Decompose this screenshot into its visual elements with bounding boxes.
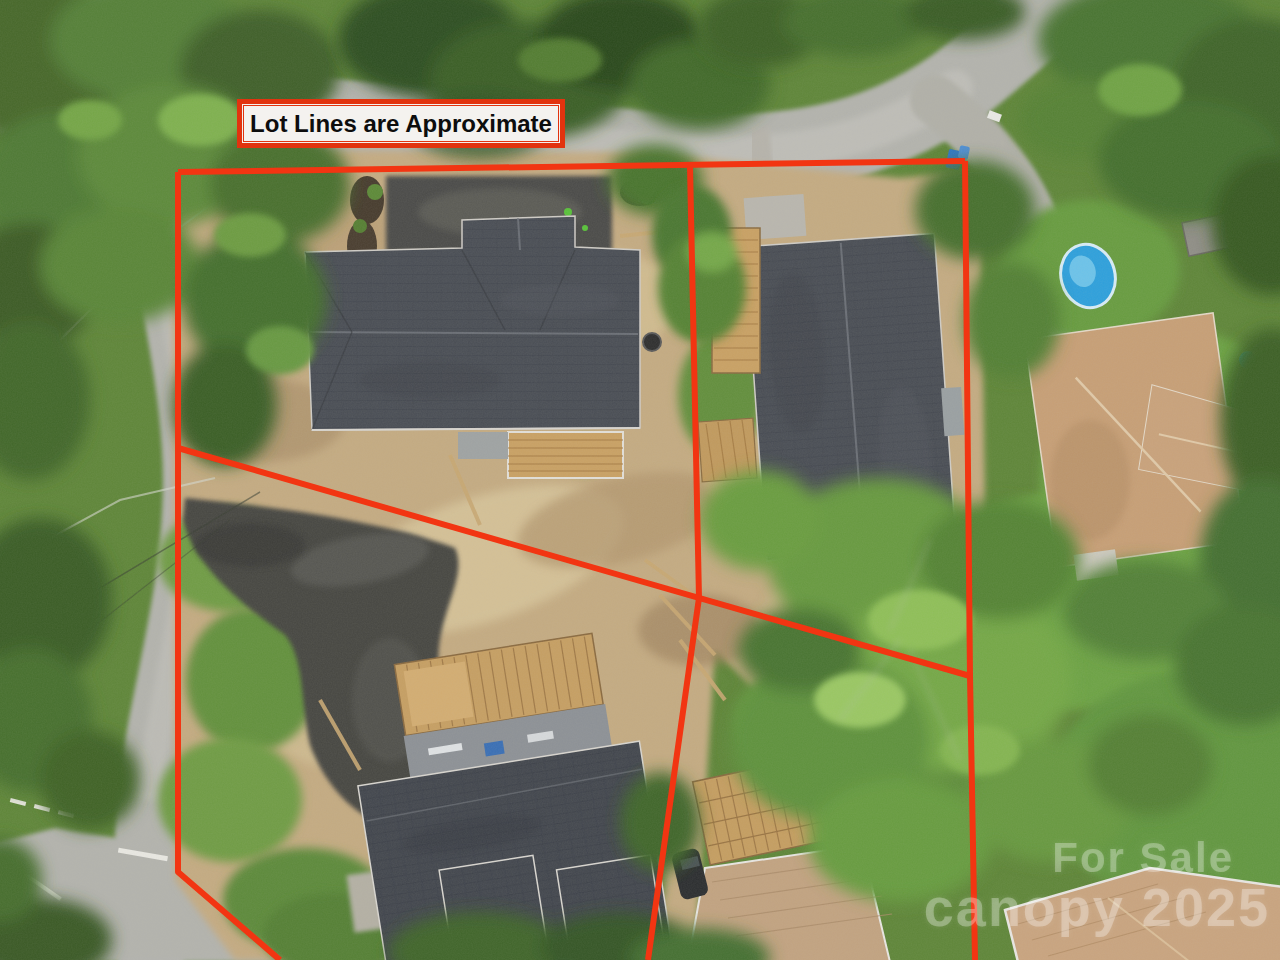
lot-lines-disclaimer-label: Lot Lines are Approximate [237, 99, 565, 148]
aerial-photo: Lot Lines are Approximate For Sale canop… [0, 0, 1280, 960]
photo-grain [0, 0, 1280, 960]
watermark-for-sale: For Sale [1052, 834, 1234, 882]
aerial-photo-canvas [0, 0, 1280, 960]
watermark-canopy-2025: canopy 2025 [924, 876, 1270, 938]
